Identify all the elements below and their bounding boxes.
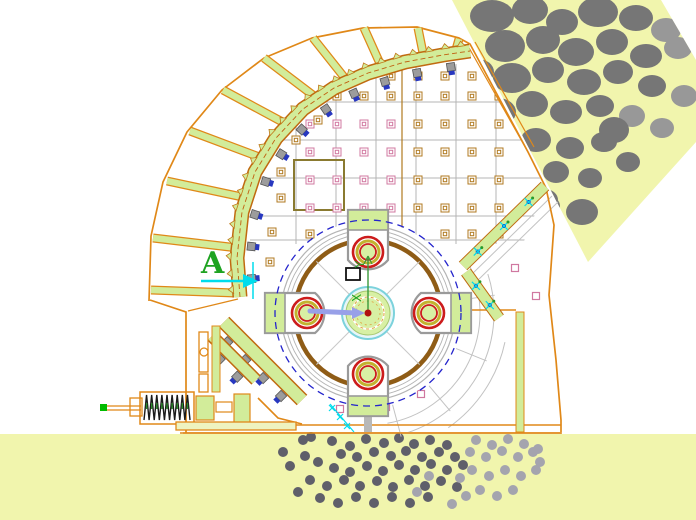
crusher-drawing: YXA <box>0 0 696 520</box>
axis-label-y: Y <box>353 260 367 269</box>
cad-viewport: YXA <box>0 0 696 520</box>
section-marker: A <box>200 246 225 281</box>
section-marker-a: A <box>200 246 225 281</box>
hammer <box>348 357 388 416</box>
axis-label-x: X <box>350 294 364 302</box>
hammer <box>412 293 471 333</box>
